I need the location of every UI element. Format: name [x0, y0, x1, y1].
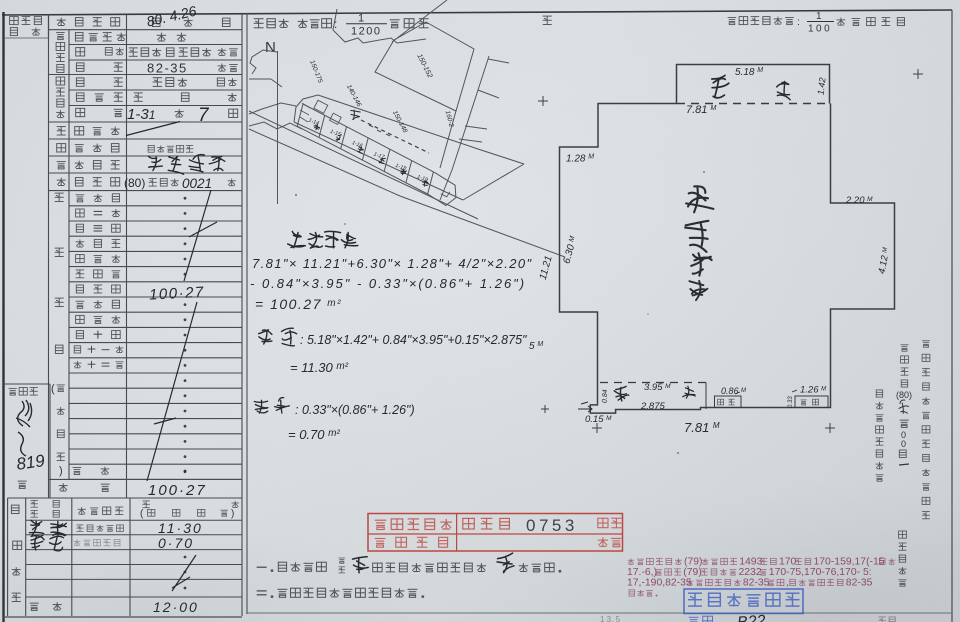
svg-text:17,-190,82-35: 17,-190,82-35: [627, 577, 692, 588]
svg-text::: :: [797, 16, 800, 28]
svg-text:0·70: 0·70: [158, 535, 194, 551]
svg-text:(: (: [51, 383, 55, 395]
svg-text:1 3, 5: 1 3, 5: [600, 615, 621, 622]
svg-text:170-159,17(-15: 170-159,17(-15: [814, 556, 885, 567]
svg-text:): ): [231, 509, 234, 520]
svg-text:: 5.18"×1.42"+ 0.84"×3.95"+0.1: : 5.18"×1.42"+ 0.84"×3.95"+0.15"×2.875": [300, 333, 527, 347]
svg-text:100·27: 100·27: [148, 482, 207, 499]
svg-text:1200: 1200: [351, 26, 381, 38]
svg-text:(80): (80): [124, 176, 145, 190]
svg-text:= 100.27 m²: = 100.27 m²: [255, 296, 342, 312]
svg-text:0: 0: [901, 439, 906, 449]
svg-text:1.28 M: 1.28 M: [566, 154, 594, 165]
svg-text:150-152: 150-152: [415, 53, 433, 79]
svg-text:1.42: 1.42: [816, 77, 828, 96]
svg-text:(: (: [140, 509, 144, 520]
svg-text:82-35: 82-35: [147, 61, 188, 76]
svg-text:150-175: 150-175: [308, 59, 324, 84]
svg-text:1-16: 1-16: [351, 140, 364, 150]
svg-text:0753: 0753: [526, 516, 578, 535]
svg-text:80. 4.26: 80. 4.26: [145, 3, 198, 30]
svg-text:1: 1: [358, 13, 364, 25]
svg-text:0.15 M: 0.15 M: [585, 414, 612, 425]
svg-text:2.875: 2.875: [640, 401, 665, 412]
svg-text:N: N: [265, 39, 276, 56]
svg-text:170-75,170-76,170- 5:: 170-75,170-76,170- 5:: [769, 567, 872, 578]
svg-text:12·00: 12·00: [153, 599, 199, 615]
svg-text:7.81"× 11.21"+6.30"× 1.28"+ 4/: 7.81"× 11.21"+6.30"× 1.28"+ 4/2"×2.20": [252, 256, 533, 271]
svg-text:100·27: 100·27: [149, 284, 206, 304]
svg-text:819: 819: [15, 451, 46, 474]
svg-text:82-35: 82-35: [846, 577, 873, 588]
svg-text:(80): (80): [896, 390, 912, 400]
svg-text:1-31: 1-31: [127, 106, 155, 123]
svg-text:2.20 M: 2.20 M: [845, 195, 873, 206]
svg-text:- 0.84"×3.95" - 0.33"×(0.86"+: - 0.84"×3.95" - 0.33"×(0.86"+ 1.26"): [250, 276, 526, 291]
svg-text:7.81 M: 7.81 M: [684, 420, 720, 435]
svg-text:170: 170: [779, 556, 797, 567]
svg-text:11·30: 11·30: [158, 520, 203, 536]
svg-text:0.33: 0.33: [788, 396, 794, 408]
svg-text:: 0.33"×(0.86"+ 1.26"): : 0.33"×(0.86"+ 1.26"): [295, 403, 415, 417]
svg-text:1493: 1493: [739, 556, 762, 567]
svg-text:7: 7: [198, 105, 210, 126]
svg-text:0.86 M: 0.86 M: [721, 386, 746, 396]
svg-text:(79): (79): [683, 567, 701, 578]
svg-text:0021: 0021: [182, 176, 212, 191]
svg-text:4.12 M: 4.12 M: [877, 246, 893, 275]
svg-text:1: 1: [816, 11, 822, 22]
svg-text:82-35: 82-35: [743, 577, 770, 588]
svg-text:150-148: 150-148: [391, 110, 409, 135]
svg-text:5.18 M: 5.18 M: [735, 67, 763, 78]
svg-text:): ): [59, 465, 63, 477]
svg-text:17.-6,): 17.-6,): [627, 567, 657, 578]
svg-text:6.30 M: 6.30 M: [562, 235, 580, 265]
svg-text:100: 100: [808, 24, 832, 35]
svg-text:2232: 2232: [739, 567, 762, 578]
svg-text:0.84: 0.84: [602, 389, 609, 403]
svg-text:11.21: 11.21: [538, 255, 555, 281]
svg-text:= 0.70 m²: = 0.70 m²: [288, 427, 340, 442]
svg-text:B22: B22: [737, 613, 767, 622]
svg-text:(79): (79): [684, 556, 702, 567]
svg-text:= 11.30 m²: = 11.30 m²: [290, 360, 349, 375]
svg-text:1.26 M: 1.26 M: [800, 385, 826, 396]
svg-text:160-2: 160-2: [444, 110, 455, 128]
svg-text:1-14: 1-14: [307, 118, 319, 127]
svg-text:3.95 M: 3.95 M: [644, 382, 671, 393]
svg-text:,: ,: [786, 577, 789, 588]
svg-text:5 M: 5 M: [529, 341, 543, 352]
svg-text:7.81 M: 7.81 M: [686, 104, 716, 116]
